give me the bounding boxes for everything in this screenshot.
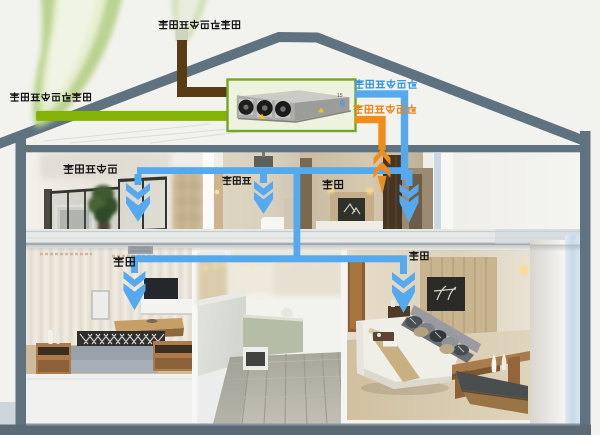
svg-text:15: 15	[337, 93, 343, 99]
